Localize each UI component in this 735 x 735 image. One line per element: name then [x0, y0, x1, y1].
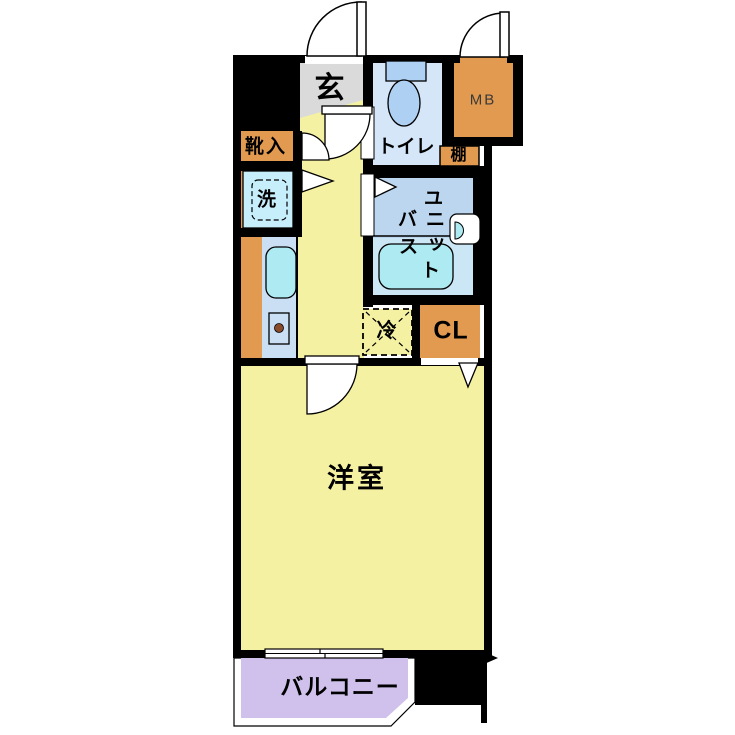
- label-unit-bath-char: ッ: [427, 234, 447, 253]
- toilet-tank-icon: [386, 61, 426, 81]
- wall: [293, 131, 302, 237]
- label-unit-bath-char: ス: [399, 238, 419, 257]
- label-western-room: 洋室: [327, 466, 387, 493]
- label-fridge: 冷: [377, 321, 398, 341]
- label-shoe-cabinet: 靴入: [245, 138, 287, 157]
- wall: [442, 137, 523, 146]
- wall: [442, 55, 454, 146]
- label-toilet: トイレ: [377, 138, 434, 157]
- entrance-opening: [305, 56, 363, 64]
- label-meter-box: MB: [470, 93, 497, 108]
- floor-plan: 玄 トイレ MB 靴入 棚 洗 ユ ニ ッ ト バ ス 冷 CL 洋室 バルコニ…: [0, 0, 735, 735]
- entrance-door-leaf: [357, 2, 366, 56]
- bath-door-opening: [361, 174, 374, 236]
- dead-space: [241, 63, 300, 131]
- wall: [240, 161, 293, 171]
- wall: [363, 295, 484, 305]
- toilet-bowl-icon: [388, 80, 420, 126]
- meter-box-door-swing: [460, 13, 504, 57]
- kitchen-base: [241, 237, 262, 358]
- label-unit-bath-char: ト: [421, 262, 441, 281]
- room-door-leaf: [305, 356, 359, 364]
- label-closet: CL: [433, 319, 468, 344]
- genkan-door-leaf: [322, 106, 372, 114]
- label-genkan: 玄: [315, 74, 346, 104]
- label-unit-bath-char: バ: [398, 211, 418, 230]
- wall: [233, 55, 241, 658]
- label-unit-bath-char: ユ: [424, 190, 444, 209]
- wall: [412, 303, 420, 358]
- wall: [233, 228, 302, 237]
- western-room-floor: [241, 366, 484, 650]
- meter-box-door-leaf: [500, 12, 509, 57]
- floor-plan-drawing: [0, 0, 735, 735]
- wall: [437, 166, 484, 178]
- wall: [481, 658, 487, 723]
- wall: [513, 55, 523, 146]
- wall: [415, 658, 487, 705]
- burner-icon: [275, 324, 284, 333]
- label-unit-bath-char: ニ: [426, 211, 446, 230]
- label-balcony: バルコニー: [280, 676, 400, 699]
- label-washer: 洗: [257, 191, 277, 210]
- wall: [484, 146, 492, 658]
- label-shelf: 棚: [450, 148, 467, 164]
- kitchen-sink-icon: [266, 247, 296, 298]
- entrance-door-swing: [307, 2, 361, 56]
